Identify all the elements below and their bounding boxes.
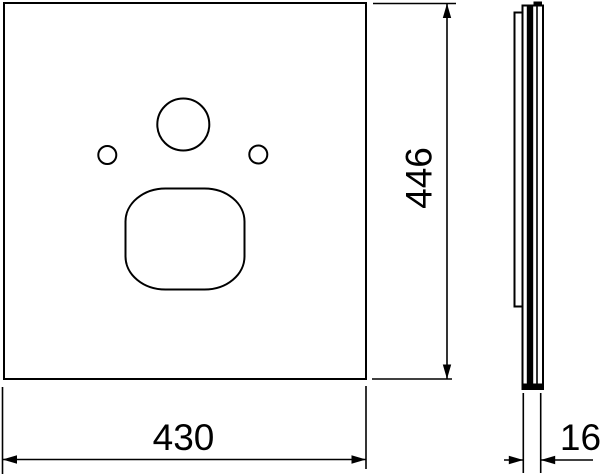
arrowhead-left-icon (541, 456, 556, 464)
panel-top-tab (534, 2, 543, 7)
panel-outline (4, 3, 366, 379)
width-dimension: 430 (3, 386, 367, 474)
arrowhead-right-icon (509, 456, 524, 464)
panel-edge-filled-layer (527, 7, 533, 389)
height-dimension: 446 (372, 4, 456, 380)
dimension-drawing-canvas: 430 446 16 (0, 0, 600, 475)
width-value-label: 430 (153, 417, 215, 458)
arrowhead-up-icon (443, 4, 451, 19)
panel-bottom-cap (523, 384, 544, 390)
height-value-label: 446 (399, 147, 440, 209)
depth-dimension: 16 (504, 393, 600, 473)
front-view (4, 3, 366, 379)
arrowhead-down-icon (443, 365, 451, 380)
side-view (515, 2, 544, 390)
technical-drawing: 430 446 16 (0, 0, 600, 475)
depth-value-label: 16 (560, 417, 600, 458)
arrowhead-right-icon (352, 455, 367, 463)
arrowhead-left-icon (3, 455, 18, 463)
